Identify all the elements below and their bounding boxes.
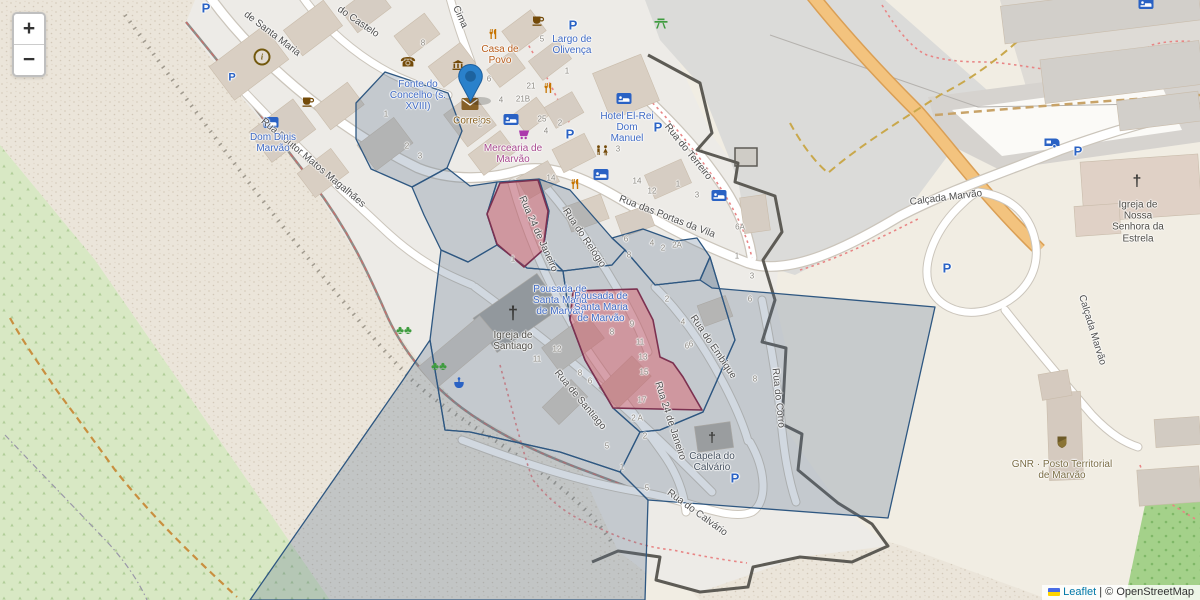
zoom-out-button[interactable]: − <box>14 44 44 75</box>
leaflet-link[interactable]: Leaflet <box>1063 586 1096 598</box>
ukraine-flag-icon <box>1048 588 1060 596</box>
base-map-svg <box>0 0 1200 600</box>
map-marker-icon[interactable] <box>458 64 500 111</box>
attribution-bar: Leaflet | © OpenStreetMap <box>1042 585 1200 600</box>
attribution-separator: | <box>1099 586 1102 598</box>
osm-copyright-link[interactable]: © OpenStreetMap <box>1105 586 1194 598</box>
zoom-in-button[interactable]: + <box>14 14 44 44</box>
zoom-control: + − <box>12 12 46 77</box>
leaflet-map[interactable]: i ☎ P P P P P P P <box>0 0 1200 600</box>
